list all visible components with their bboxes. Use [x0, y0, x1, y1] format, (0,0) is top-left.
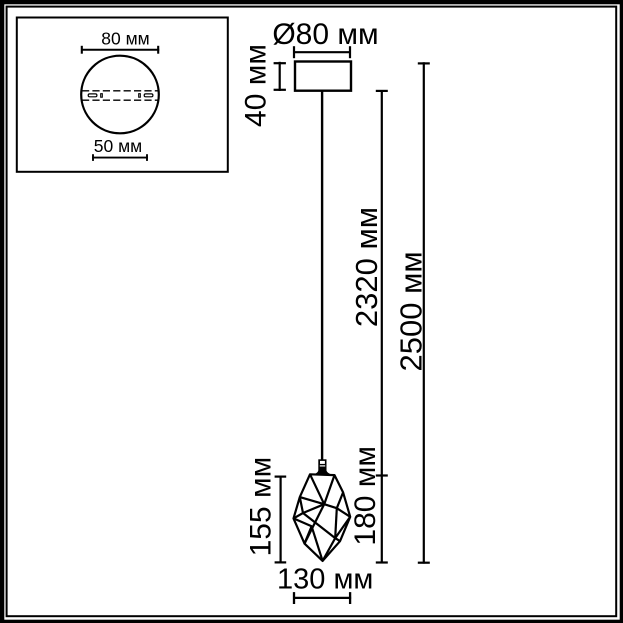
svg-text:40 мм: 40 мм	[239, 44, 272, 127]
svg-text:50 мм: 50 мм	[94, 136, 142, 156]
svg-text:Ø80 мм: Ø80 мм	[272, 18, 378, 51]
svg-text:155 мм: 155 мм	[245, 457, 278, 557]
svg-text:2320 мм: 2320 мм	[349, 207, 384, 327]
svg-text:80 мм: 80 мм	[101, 29, 149, 49]
svg-text:2500 мм: 2500 мм	[394, 251, 429, 371]
svg-text:130 мм: 130 мм	[277, 564, 373, 596]
svg-text:180 мм: 180 мм	[349, 446, 382, 546]
